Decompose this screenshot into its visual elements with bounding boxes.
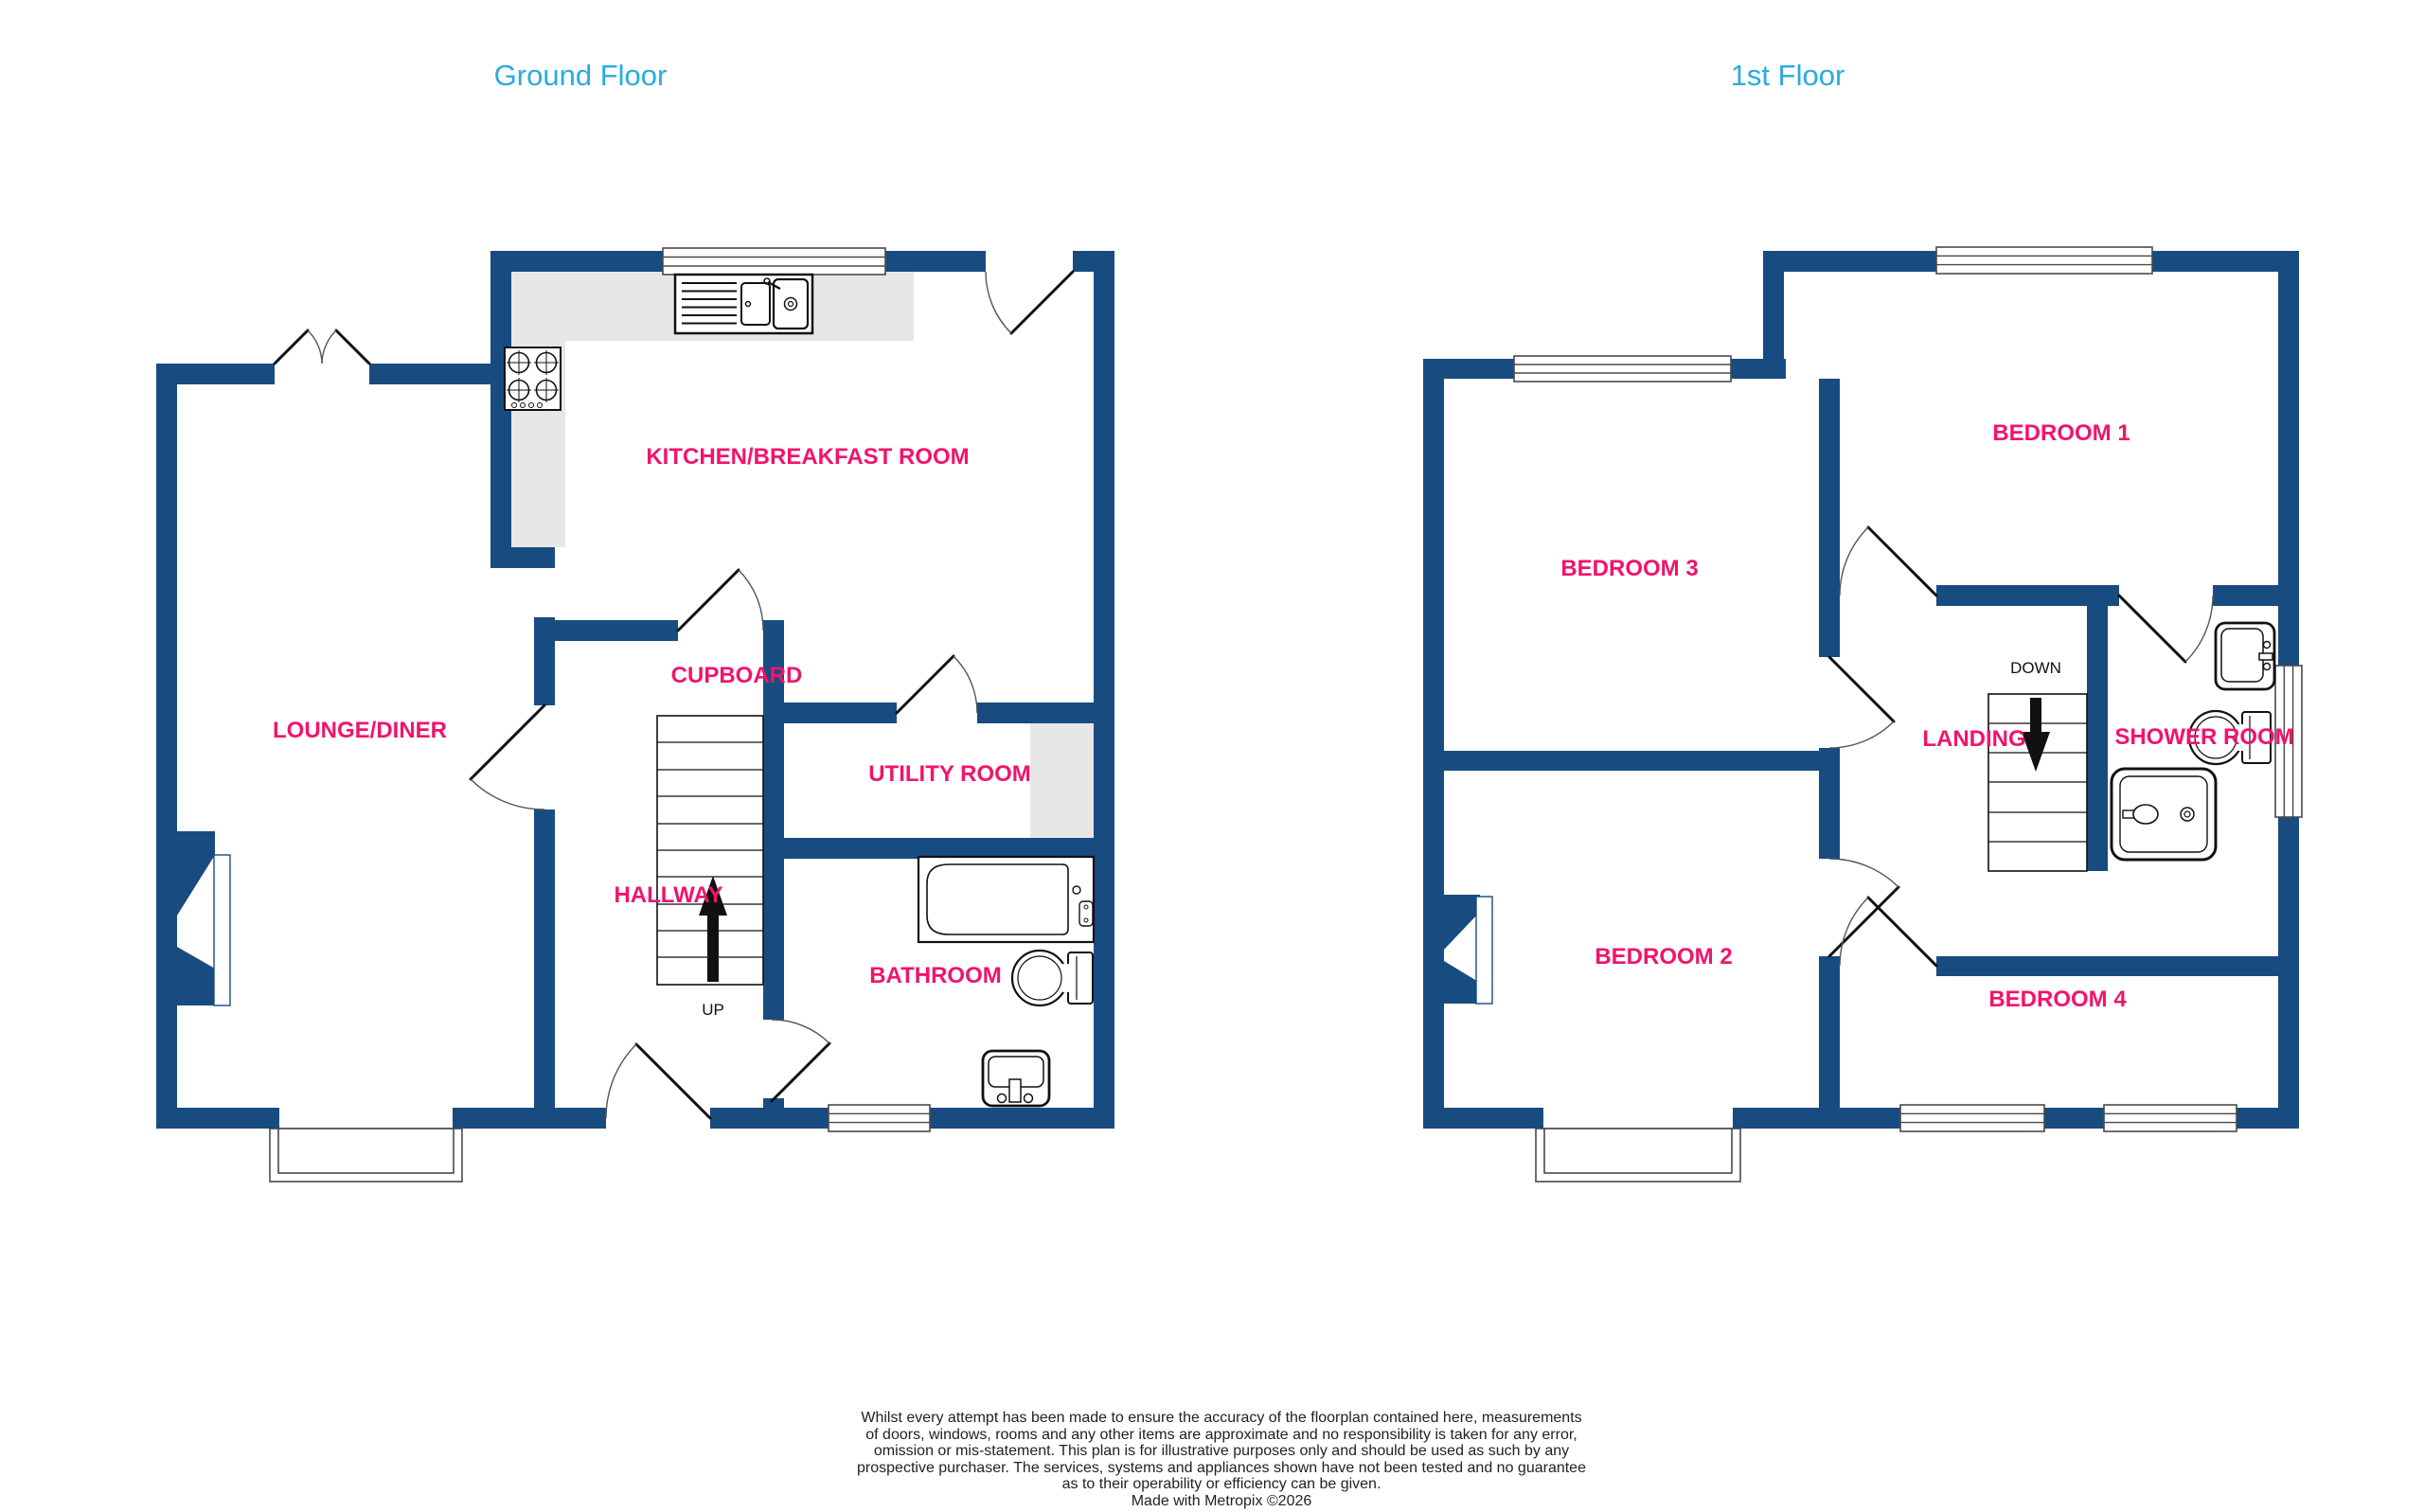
kitchen-external-door xyxy=(986,272,1073,333)
first-floor-plan: BEDROOM 1 BEDROOM 3 LANDING SHOWER ROOM … xyxy=(1423,247,2302,1182)
stairs-down-label: DOWN xyxy=(2010,659,2061,677)
utility-counter xyxy=(1030,723,1094,838)
ground-floor-plan: LOUNGE/DINER KITCHEN/BREAKFAST ROOM CUPB… xyxy=(156,248,1114,1182)
kitchen-window xyxy=(663,248,885,275)
bedroom4-window-left xyxy=(1900,1105,2044,1131)
stairs-up-label: UP xyxy=(702,1001,724,1019)
bedroom1-door xyxy=(1840,527,1936,596)
floorplan-drawing: LOUNGE/DINER KITCHEN/BREAKFAST ROOM CUPB… xyxy=(0,0,2424,1512)
washbasin-icon xyxy=(983,1051,1049,1106)
utility-door xyxy=(897,656,977,713)
shower-icon xyxy=(2112,769,2216,860)
french-doors xyxy=(275,330,369,364)
room-label-shower-room: SHOWER ROOM xyxy=(2114,724,2293,750)
room-label-hallway: HALLWAY xyxy=(614,882,722,908)
bedroom3-window xyxy=(1514,356,1731,382)
bedroom3-door xyxy=(1829,657,1894,748)
room-label-landing: LANDING xyxy=(1922,726,2025,752)
bathroom-window xyxy=(829,1105,930,1131)
room-label-utility-room: UTILITY ROOM xyxy=(868,761,1031,787)
room-label-kitchen-breakfast-room: KITCHEN/BREAKFAST ROOM xyxy=(646,444,969,470)
room-label-bedroom-3: BEDROOM 3 xyxy=(1560,556,1698,581)
room-label-bedroom-2: BEDROOM 2 xyxy=(1595,944,1732,969)
bathtub-icon xyxy=(918,857,1094,942)
shower-room-door xyxy=(2119,596,2213,662)
staircase-up xyxy=(657,716,763,985)
toilet-icon xyxy=(1012,951,1093,1005)
kitchen-sink-icon xyxy=(675,275,812,333)
disclaimer-line: Whilst every attempt has been made to en… xyxy=(767,1410,1676,1427)
disclaimer-line: omission or mis-statement. This plan is … xyxy=(767,1443,1676,1460)
bay-window xyxy=(177,831,230,1005)
floorplan-page: Ground Floor 1st Floor xyxy=(0,0,2424,1512)
bedroom4-window-right xyxy=(2104,1105,2237,1131)
bedroom1-window xyxy=(1936,247,2152,274)
room-label-lounge-diner: LOUNGE/DINER xyxy=(273,718,447,743)
disclaimer-credit: Made with Metropix ©2026 xyxy=(767,1493,1676,1510)
room-label-bedroom-4: BEDROOM 4 xyxy=(1988,987,2127,1012)
bedroom2-door xyxy=(1829,859,1898,956)
disclaimer-line: of doors, windows, rooms and any other i… xyxy=(767,1427,1676,1444)
bay-window xyxy=(1444,895,1492,1004)
bathroom-door xyxy=(772,1020,829,1101)
disclaimer-line: as to their operability or efficiency ca… xyxy=(767,1476,1676,1493)
cupboard-door xyxy=(678,570,763,631)
disclaimer-line: prospective purchaser. The services, sys… xyxy=(767,1460,1676,1477)
room-label-bedroom-1: BEDROOM 1 xyxy=(1992,420,2130,446)
staircase-down xyxy=(1988,694,2087,871)
hob-icon xyxy=(505,347,561,410)
lounge-door xyxy=(471,705,544,809)
room-label-bathroom: BATHROOM xyxy=(869,963,1002,988)
disclaimer: Whilst every attempt has been made to en… xyxy=(767,1410,1676,1510)
room-label-cupboard: CUPBOARD xyxy=(671,663,803,688)
washbasin-icon xyxy=(2216,623,2274,689)
